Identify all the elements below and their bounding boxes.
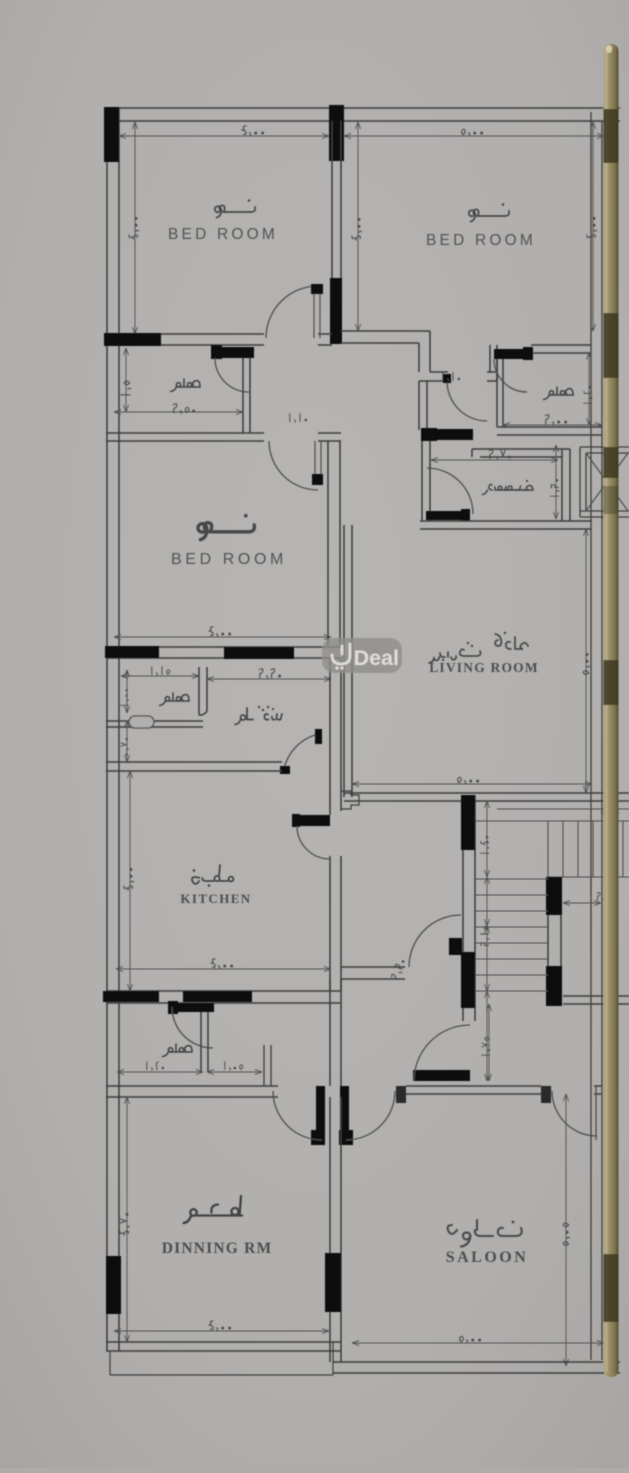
svg-text:BED ROOM: BED ROOM (426, 232, 536, 249)
svg-text:SALOON: SALOON (446, 1249, 529, 1266)
svg-text:LIVING ROOM: LIVING ROOM (429, 660, 539, 675)
svg-text:KITCHEN: KITCHEN (180, 891, 251, 906)
svg-text:BED ROOM: BED ROOM (171, 551, 287, 568)
svg-text:BED ROOM: BED ROOM (168, 226, 278, 243)
svg-text:Deal: Deal (354, 646, 399, 670)
svg-text:DINNING RM: DINNING RM (162, 1240, 273, 1257)
